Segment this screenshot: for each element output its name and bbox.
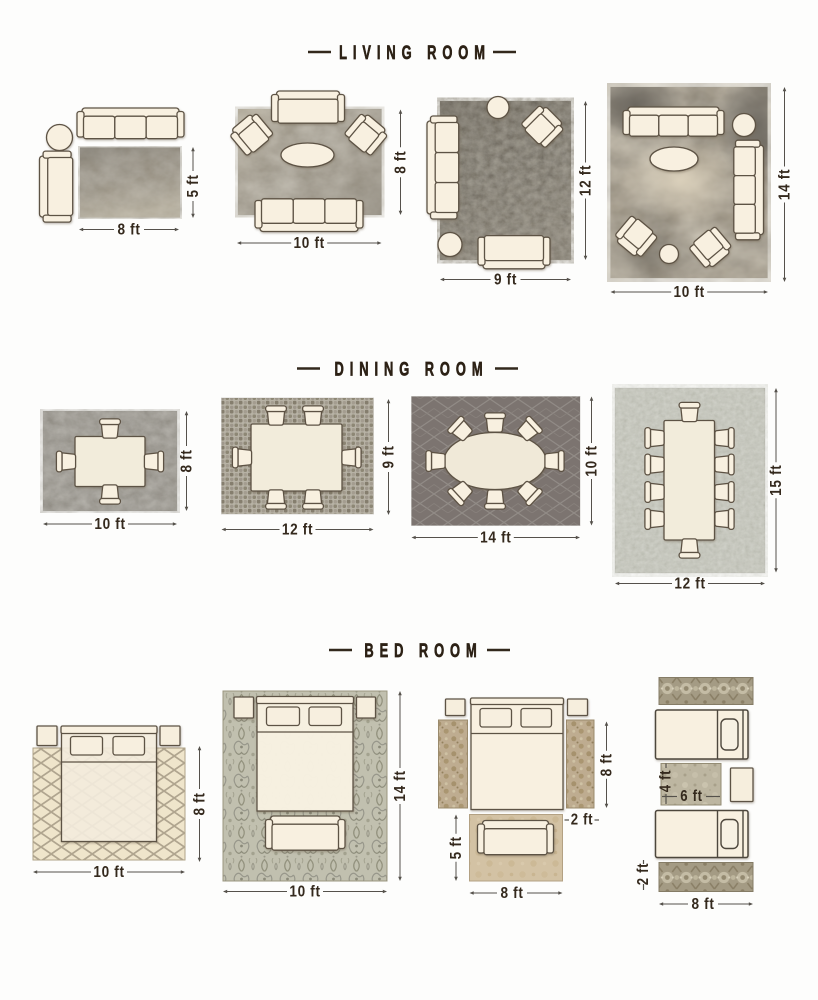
svg-text:DINING ROOM: DINING ROOM <box>335 358 489 380</box>
svg-text:10 ft: 10 ft <box>294 235 325 252</box>
svg-text:LIVING ROOM: LIVING ROOM <box>339 41 491 63</box>
svg-text:10 ft: 10 ft <box>93 864 124 881</box>
svg-text:5 ft: 5 ft <box>185 174 202 197</box>
svg-text:10 ft: 10 ft <box>674 284 705 301</box>
svg-text:15 ft: 15 ft <box>768 465 785 496</box>
svg-text:8 ft: 8 ft <box>178 449 195 472</box>
svg-text:9 ft: 9 ft <box>380 445 397 468</box>
svg-text:9 ft: 9 ft <box>494 271 517 288</box>
svg-text:4 ft: 4 ft <box>657 770 674 792</box>
svg-text:14 ft: 14 ft <box>776 169 793 200</box>
svg-text:14 ft: 14 ft <box>480 529 511 546</box>
svg-text:BED ROOM: BED ROOM <box>364 639 482 661</box>
svg-text:12 ft: 12 ft <box>282 521 313 538</box>
svg-text:5 ft: 5 ft <box>448 836 465 859</box>
svg-text:8 ft: 8 ft <box>117 221 140 238</box>
svg-text:10 ft: 10 ft <box>289 883 320 900</box>
svg-text:8 ft: 8 ft <box>392 151 409 174</box>
svg-text:10 ft: 10 ft <box>94 516 125 533</box>
svg-text:8 ft: 8 ft <box>691 896 714 913</box>
svg-text:8 ft: 8 ft <box>500 885 523 902</box>
svg-text:14 ft: 14 ft <box>392 770 409 801</box>
svg-text:8 ft: 8 ft <box>191 792 208 815</box>
svg-text:12 ft: 12 ft <box>674 575 705 592</box>
svg-text:12 ft: 12 ft <box>577 165 594 196</box>
svg-text:8 ft: 8 ft <box>598 753 615 776</box>
svg-text:2 ft: 2 ft <box>571 811 593 828</box>
svg-text:2 ft: 2 ft <box>635 863 652 885</box>
svg-text:10 ft: 10 ft <box>583 445 600 476</box>
svg-text:6 ft: 6 ft <box>680 788 702 805</box>
